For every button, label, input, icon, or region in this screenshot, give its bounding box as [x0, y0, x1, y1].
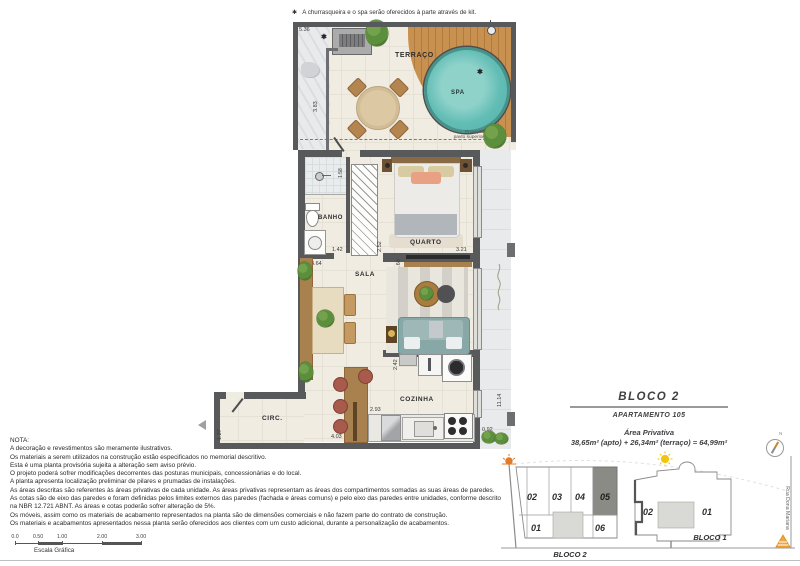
- oven-tower: [418, 354, 442, 376]
- area-value: 38,65m² (apto) + 26,34m² (terraço) = 64,…: [563, 438, 735, 447]
- window: [473, 166, 482, 238]
- stair-core: [553, 512, 583, 538]
- circ-label: CIRC.: [262, 415, 283, 422]
- scale-label: 0.50: [33, 534, 43, 540]
- bar-stool: [358, 369, 373, 384]
- nota-line: Esta é uma planta provisória sujeita a a…: [10, 462, 501, 470]
- dining-chair: [344, 294, 356, 316]
- pyramid-icon: [776, 535, 790, 547]
- plant-icon: [484, 124, 506, 148]
- bloco2-label: BLOCO 2: [553, 550, 587, 559]
- scale-bar: 0.0 0.50 1.00 2.00 3.00: [12, 541, 144, 547]
- closet: [351, 164, 378, 256]
- dim-321: 3.21: [456, 247, 467, 253]
- cozinha-label: COZINHA: [400, 396, 434, 403]
- floorplan-page: ✱A churrasqueira e o spa serão oferecido…: [0, 0, 800, 566]
- top-note: ✱A churrasqueira e o spa serão oferecido…: [292, 9, 476, 16]
- title-rule: [570, 406, 728, 408]
- wall: [293, 22, 516, 27]
- sun-icon: [658, 452, 673, 467]
- plant-icon: [317, 310, 334, 327]
- nota-line: A planta apresenta localização prelimina…: [10, 478, 501, 486]
- nota-block: NOTA: A decoração e revestimentos são me…: [10, 437, 501, 528]
- bar-stool: [333, 377, 348, 392]
- kitchen-shelf: [399, 354, 417, 366]
- column: [507, 412, 515, 426]
- signature-watermark: [492, 262, 506, 312]
- divider: [305, 194, 346, 195]
- banho-label: BANHO: [318, 215, 343, 221]
- column: [507, 243, 515, 257]
- window: [473, 268, 482, 350]
- sala-label: SALA: [355, 271, 375, 278]
- nota-line: As áreas descritas são referentes às áre…: [10, 487, 501, 495]
- sink-counter: [304, 230, 326, 255]
- wall: [293, 22, 298, 150]
- nota-line: Os móveis, assim como os materiais de ac…: [10, 512, 501, 520]
- lamp-table: [386, 326, 397, 343]
- scale-label: 2.00: [97, 534, 107, 540]
- shower-arm: [322, 175, 331, 176]
- plant-icon: [298, 262, 312, 280]
- block-title: BLOCO 2: [563, 391, 735, 403]
- unit-label-highlighted: 05: [600, 492, 611, 502]
- unit-label: 01: [531, 523, 541, 533]
- area-label: Área Privativa: [563, 428, 735, 437]
- projection-label: Projeçãopavto superior: [438, 130, 484, 141]
- dim-536: 5.36: [299, 27, 310, 33]
- wall: [326, 48, 329, 150]
- dim-158: 1.58: [338, 164, 344, 178]
- unit-label: 03: [552, 492, 562, 502]
- nightstand: [382, 159, 392, 172]
- apartment-number: APARTAMENTO 105: [563, 412, 735, 419]
- spa-tub: [424, 47, 510, 133]
- spa-label: SPA: [451, 90, 465, 96]
- street-label: Rua Dona Mariana: [784, 486, 790, 530]
- shower-head-icon: [315, 172, 324, 181]
- entry-arrow-icon: [198, 420, 206, 430]
- scale-label: 1.00: [57, 534, 67, 540]
- sofa: [398, 317, 470, 355]
- nightstand: [460, 159, 472, 172]
- bar-stool: [333, 419, 348, 434]
- scale-label: 0.0: [11, 534, 18, 540]
- bed: [394, 163, 460, 238]
- wall: [326, 48, 338, 51]
- top-note-text: A churrasqueira e o spa serão oferecidos…: [302, 9, 476, 16]
- terrace-marble-strip: [294, 27, 330, 149]
- sunset-icon: [502, 454, 516, 464]
- bar-stool: [333, 399, 348, 414]
- dim-142: 1.42: [332, 247, 343, 253]
- spa-asterisk: ✱: [477, 68, 483, 76]
- scale-label: 3.00: [136, 534, 146, 540]
- star-icon: ✱: [292, 9, 297, 16]
- dim-383: 3.83: [313, 88, 319, 112]
- grill-asterisk: ✱: [321, 33, 327, 41]
- wall: [346, 157, 350, 253]
- nota-line: O projeto poderá sofrer modificações dec…: [10, 470, 501, 478]
- nota-line: A decoração e revestimentos são merament…: [10, 445, 501, 453]
- wall: [360, 150, 480, 157]
- wall: [511, 22, 516, 142]
- unit-label: 06: [595, 523, 606, 533]
- stair-core: [658, 502, 694, 528]
- dim-252: 2.52: [377, 236, 383, 252]
- nota-line: Os materiais a serem utilizados na const…: [10, 454, 501, 462]
- dining-chair: [344, 322, 356, 344]
- plant-icon: [299, 362, 313, 382]
- nota-line: Os materiais e acabamentos apresentados …: [10, 520, 501, 528]
- terrace-label: TERRAÇO: [395, 52, 434, 59]
- dim-293: 2.93: [370, 407, 381, 413]
- info-panel: BLOCO 2 APARTAMENTO 105 Área Privativa 3…: [563, 391, 735, 447]
- nota-line: na NBR 12.721 ABNT. As áreas e cotas pod…: [10, 503, 501, 511]
- unit-05-highlight: [593, 467, 617, 515]
- bloco1-label: BLOCO 1: [693, 533, 726, 542]
- unit-label: 04: [575, 492, 585, 502]
- stove-icon: [444, 413, 473, 439]
- unit-label: 01: [702, 507, 712, 517]
- nota-title: NOTA:: [10, 437, 501, 445]
- site-plan: 02 03 04 05 01 06 BLOCO 2 02 01 BLOCO 1 …: [495, 450, 797, 562]
- tv-icon: [406, 255, 470, 259]
- scale-caption: Escala Gráfica: [34, 547, 74, 554]
- nota-line: As cotas são de eixo das paredes e foram…: [10, 495, 501, 503]
- unit-label: 02: [527, 492, 537, 502]
- washer-icon: [442, 354, 472, 382]
- compass-north: N: [779, 431, 782, 436]
- terrace-table: [356, 86, 400, 130]
- outdoor-shower-icon: [487, 26, 496, 35]
- page-bottom-rule: [0, 560, 800, 561]
- dim-1114: 11.14: [497, 383, 503, 407]
- quarto-label: QUARTO: [410, 239, 442, 246]
- decor-stone: [301, 62, 319, 77]
- side-coffee-table: [437, 285, 455, 303]
- unit-label: 02: [643, 507, 653, 517]
